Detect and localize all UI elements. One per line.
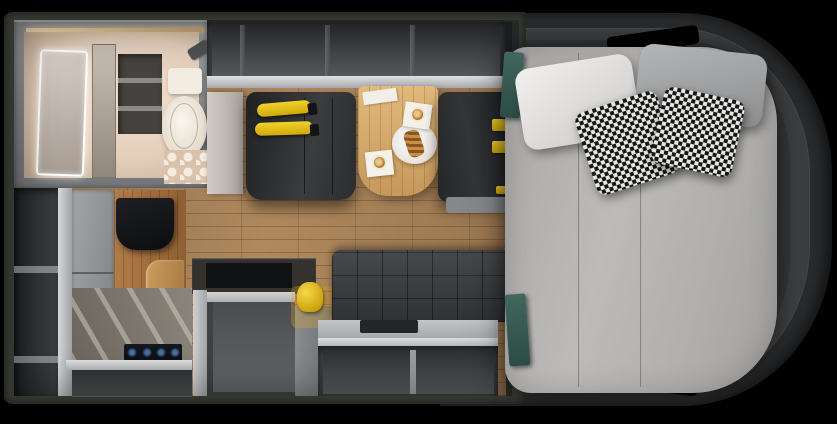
under-counter-storage: [72, 370, 192, 397]
island-side-trim: [193, 290, 207, 396]
coffee-plate: [365, 150, 394, 178]
coffee-cup: [371, 154, 387, 170]
cabinet-interior: [212, 25, 500, 76]
coffee-cup: [409, 106, 426, 123]
pastry-plate: [392, 123, 437, 164]
wardrobe-shelves: [14, 188, 58, 396]
island-top-trim: [207, 292, 295, 302]
bathroom-door-panel: [92, 44, 116, 178]
bathroom-step-ledge: [207, 92, 243, 194]
cooktop: [124, 344, 182, 361]
chair-seam: [332, 98, 333, 194]
led-mirror: [36, 49, 88, 177]
seatbelt-clip: [307, 102, 318, 115]
cabinet-divider: [410, 25, 415, 76]
storage-compartment: [323, 350, 494, 394]
sofa-front-trim: [318, 338, 498, 346]
sofa-back-cushion: [332, 250, 510, 322]
coffee-plate: [402, 101, 432, 130]
cabinet-divider: [240, 25, 245, 76]
toilet: [162, 96, 207, 158]
counter-edge-trim: [66, 360, 192, 370]
pastry: [402, 128, 426, 159]
toilet-tank: [168, 68, 202, 94]
houndstooth-pillow-right: [650, 85, 746, 178]
sink-cover-inset: [206, 263, 292, 288]
yellow-kettle: [297, 282, 323, 312]
chair-pedestal: [446, 197, 510, 213]
sofa-seat-inset: [360, 320, 418, 333]
seatbelt-strap: [255, 121, 313, 136]
island-cabinet: [207, 292, 295, 396]
cabinet-divider: [325, 25, 330, 76]
shower-floor-tiles: [164, 150, 207, 184]
island-open-shelf: [213, 302, 295, 392]
bathroom: [14, 20, 207, 188]
rv-floorplan-scene: [0, 0, 837, 424]
bathroom-light-strip: [26, 28, 204, 32]
tv-screen: [116, 198, 174, 250]
storage-divider: [410, 350, 416, 394]
cabinet-trim: [207, 76, 505, 88]
bathroom-shelf: [118, 54, 162, 134]
seatbelt-clip: [310, 124, 320, 137]
sofa-storage: [318, 346, 498, 396]
overhead-cabinet: [207, 20, 505, 88]
fridge-door-seam: [72, 272, 114, 274]
